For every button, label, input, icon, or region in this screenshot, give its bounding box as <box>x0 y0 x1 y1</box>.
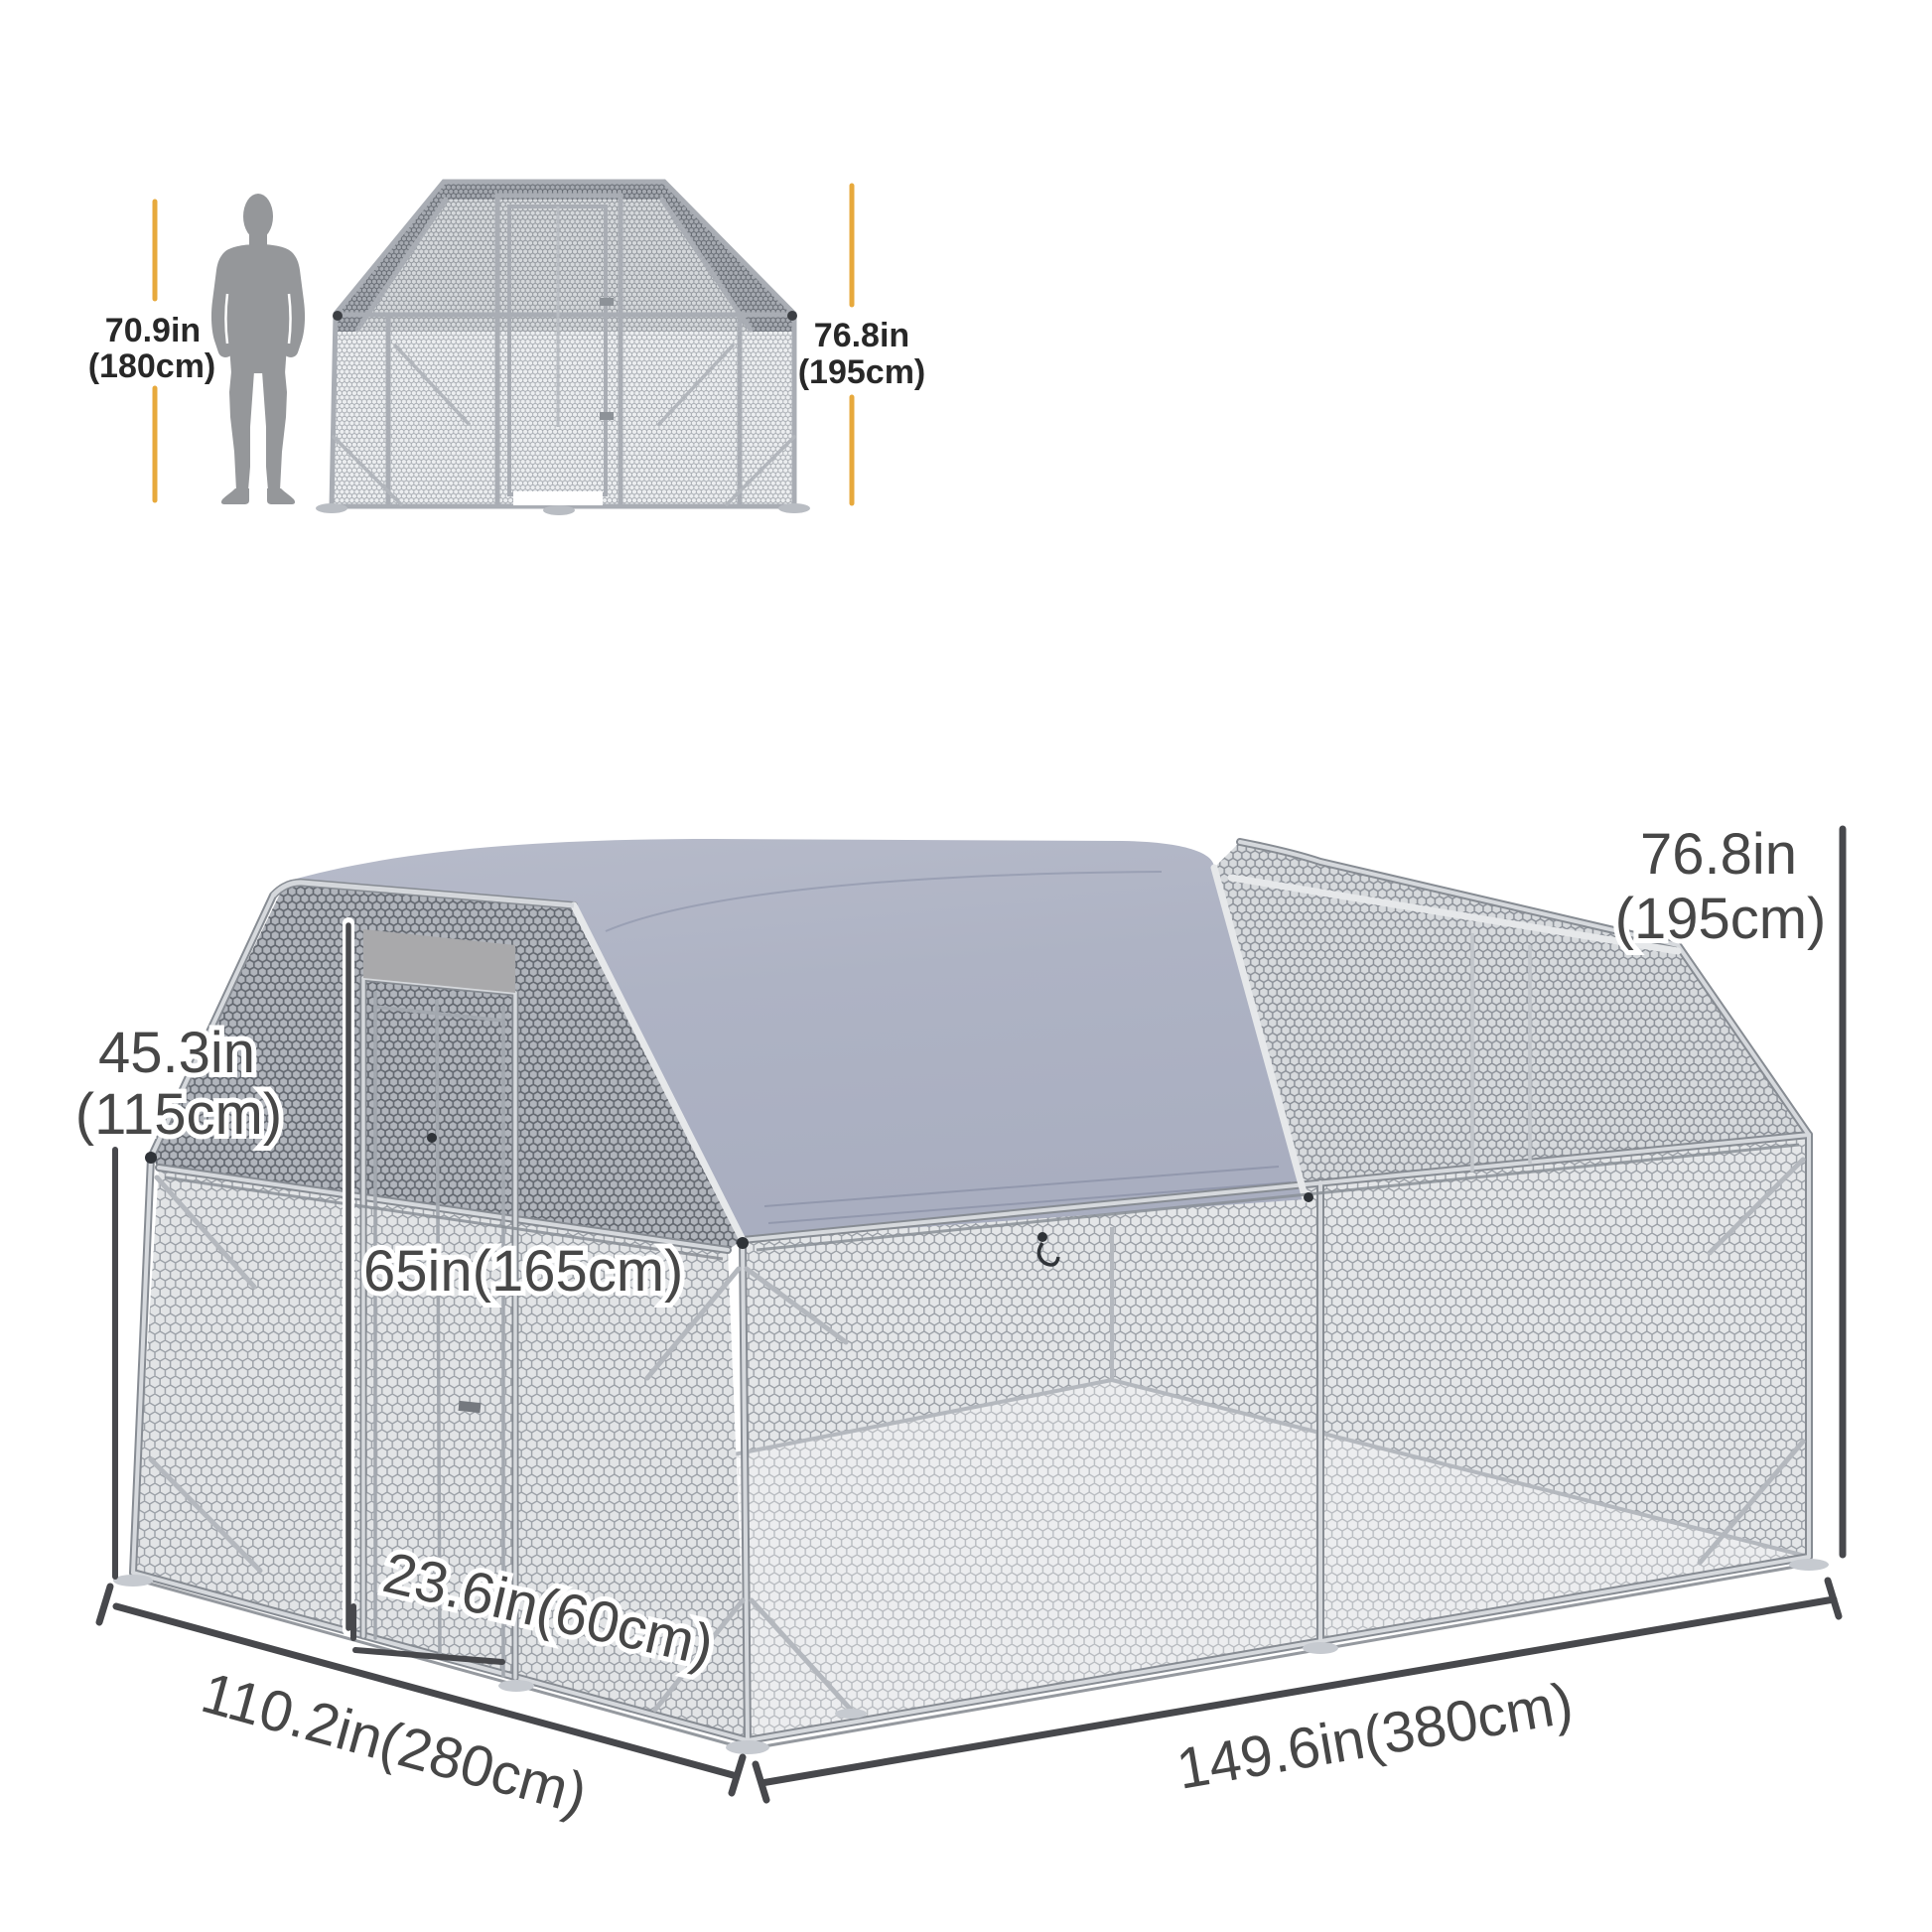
svg-text:65in(165cm): 65in(165cm) <box>363 1239 683 1304</box>
svg-text:(115cm): (115cm) <box>75 1082 282 1147</box>
svg-text:70.9in: 70.9in <box>105 312 201 349</box>
svg-text:(195cm): (195cm) <box>1615 887 1827 951</box>
svg-text:45.3in: 45.3in <box>98 1021 255 1085</box>
svg-text:76.8in: 76.8in <box>1640 822 1797 887</box>
svg-text:(195cm): (195cm) <box>798 353 926 391</box>
svg-text:76.8in: 76.8in <box>814 317 909 354</box>
svg-text:(180cm): (180cm) <box>88 347 216 385</box>
